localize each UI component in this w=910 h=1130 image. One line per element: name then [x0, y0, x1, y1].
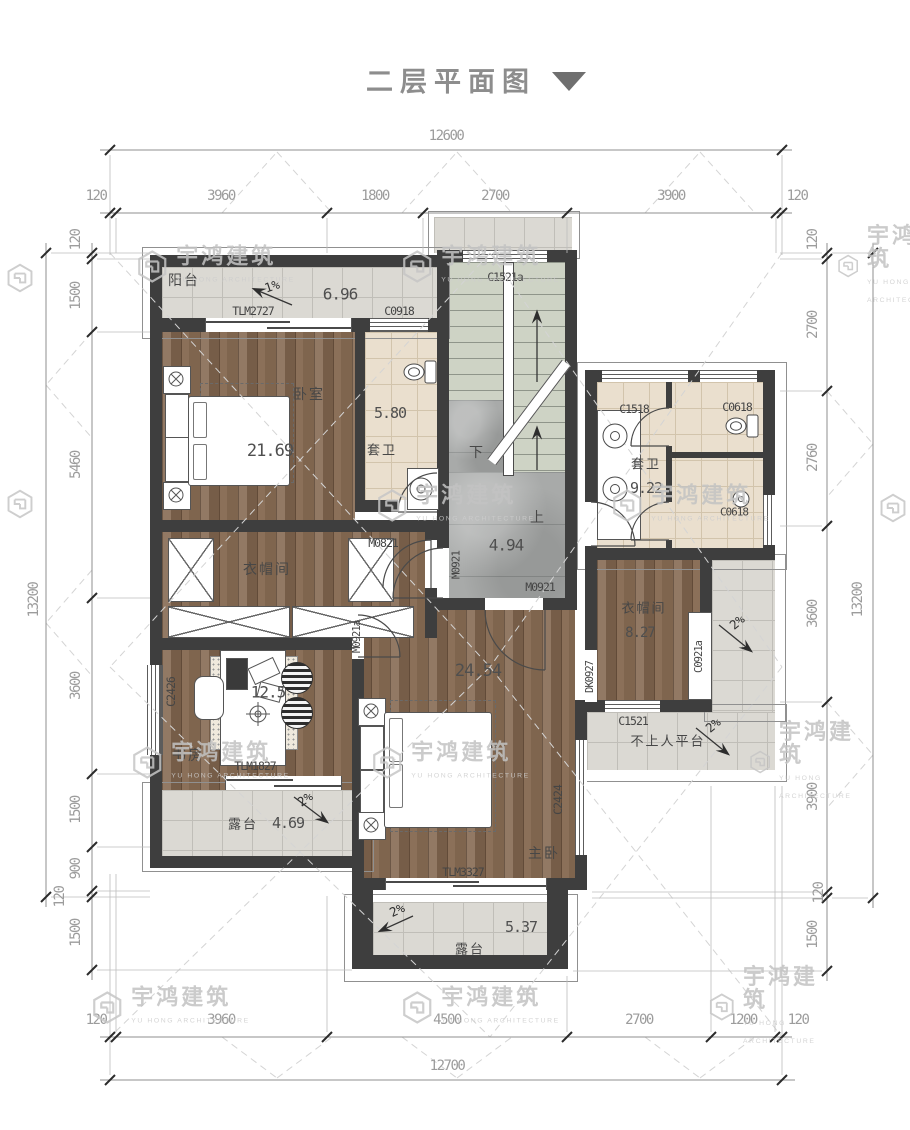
stall-divider — [666, 382, 672, 408]
stall-divider — [672, 452, 763, 458]
dim-right-2: 2760 — [805, 444, 821, 472]
watermark-logo-partial — [878, 493, 908, 523]
dim-top-5: 120 — [787, 188, 808, 204]
dim-bottom-2: 4500 — [433, 1012, 461, 1028]
area-balcony: 6.96 — [323, 285, 358, 304]
area-terrace-bottom: 5.37 — [505, 918, 537, 936]
wall-segment — [585, 548, 775, 560]
ensuite-vanity — [407, 468, 439, 510]
opening-label-dk0927: DK0927 — [584, 661, 596, 693]
nightstand — [358, 812, 386, 840]
door-opening-m0921-west — [437, 548, 449, 598]
monitor-icon — [226, 658, 248, 690]
wall-segment — [565, 250, 577, 610]
dim-right-1: 2700 — [805, 311, 821, 339]
bedside-drawer — [360, 726, 384, 770]
window-label-c2426: C2426 — [164, 677, 178, 707]
dim-bottom-4: 1200 — [729, 1012, 757, 1028]
door-label-m0921-south: M0921 — [525, 580, 555, 594]
window-label-c2424: C2424 — [551, 785, 565, 815]
dim-top-total: 12600 — [429, 128, 464, 144]
dim-bottom-total: 12700 — [430, 1058, 465, 1074]
wall-segment — [355, 332, 365, 512]
bedside-drawer — [165, 437, 189, 482]
dim-bottom-1: 3960 — [207, 1012, 235, 1028]
dim-right-6: 1500 — [805, 921, 821, 949]
dim-top-1: 3960 — [207, 188, 235, 204]
window-c0618-top — [700, 370, 757, 382]
dim-right-5: 120 — [811, 883, 827, 904]
desk-chair — [194, 676, 224, 720]
dim-top-3: 2700 — [481, 188, 509, 204]
window-c1521a — [463, 250, 547, 262]
window-label-c1518: C1518 — [619, 402, 649, 416]
dim-left-total: 13200 — [26, 583, 42, 618]
watermark: 宇鸿建筑YU HONG ARCHITECTURE — [708, 966, 843, 1048]
window-c2424 — [575, 740, 587, 855]
window-label-c0618-top: C0618 — [722, 400, 752, 414]
room-label-ensuite: 套卫 — [367, 440, 397, 459]
floor-plan-sheet: 二层平面图 — [0, 0, 910, 1130]
wardrobe-cabinet — [168, 606, 290, 638]
dim-left-2: 5460 — [68, 451, 84, 479]
room-label-study: 书房 — [172, 745, 204, 765]
page-title: 二层平面图 — [366, 60, 586, 99]
dim-left-1: 1500 — [68, 282, 84, 310]
room-label-terrace-left: 露台 — [228, 814, 258, 833]
dim-right-0: 120 — [805, 230, 821, 251]
dim-bottom-5: 120 — [788, 1012, 809, 1028]
window-c1518 — [602, 370, 688, 382]
window-label-c0918: C0918 — [384, 304, 414, 318]
dim-top-4: 3900 — [657, 188, 685, 204]
area-closet-right: 8.27 — [625, 625, 655, 641]
dim-left-3: 3600 — [68, 672, 84, 700]
dim-right-3: 3600 — [805, 600, 821, 628]
wardrobe-cabinet — [168, 538, 214, 602]
dim-bottom-3: 2700 — [625, 1012, 653, 1028]
pillow — [389, 764, 403, 808]
sliding-door-tlm3327 — [385, 878, 547, 890]
striped-stool — [281, 697, 313, 729]
door-opening-bath — [585, 502, 597, 546]
bath-vanity — [597, 410, 641, 540]
wall-segment — [150, 755, 162, 868]
window-label-c0618-bottom: C0618 — [720, 506, 748, 519]
window-label-c0921a: C0921a — [693, 641, 705, 673]
area-bath: 9.22 — [630, 479, 662, 497]
room-label-bedroom: 卧室 — [293, 384, 325, 404]
room-label-bath: 套卫 — [631, 454, 661, 473]
dim-bottom-0: 120 — [86, 1012, 107, 1028]
sliding-door-tlm2727 — [205, 318, 352, 332]
dim-top-0: 120 — [86, 188, 107, 204]
door-label-tlm2727: TLM2727 — [232, 304, 273, 318]
door-opening-m0821 — [425, 540, 437, 588]
room-label-balcony: 阳台 — [168, 270, 200, 290]
page-title-text: 二层平面图 — [366, 60, 536, 99]
area-ensuite: 5.80 — [374, 404, 406, 422]
nightstand — [163, 366, 191, 394]
wall-segment — [547, 890, 568, 960]
wall-segment — [575, 700, 585, 712]
room-label-closet-right: 衣帽间 — [621, 598, 666, 617]
pillow — [193, 444, 207, 480]
wall-segment — [150, 520, 449, 532]
window-c2426 — [147, 665, 163, 755]
dim-left-6: 120 — [52, 887, 68, 908]
area-bedroom: 21.69 — [247, 441, 293, 461]
bedside-drawer — [165, 394, 189, 439]
wall-segment — [150, 856, 364, 868]
dim-right-total: 13200 — [850, 583, 866, 618]
wall-segment — [700, 560, 712, 612]
wall-segment — [150, 332, 162, 665]
pillow — [193, 402, 207, 438]
window-c1521 — [605, 700, 660, 712]
room-label-master: 主卧 — [528, 843, 560, 863]
dim-top-2: 1800 — [361, 188, 389, 204]
stair-label-up: 上 — [530, 507, 546, 527]
wall-segment — [150, 638, 362, 650]
room-label-closet-left: 衣帽间 — [243, 559, 291, 579]
outline-platform-vertical — [704, 554, 786, 722]
watermark-logo-partial — [5, 489, 35, 519]
door-label-m0821: M0821 — [368, 536, 398, 550]
dim-left-5: 900 — [68, 859, 84, 880]
area-master: 24.54 — [455, 661, 501, 681]
dim-left-0: 120 — [68, 230, 84, 251]
wall-segment — [150, 255, 440, 267]
dim-left-7: 1500 — [68, 919, 84, 947]
window-label-c1521a: C1521a — [487, 270, 523, 284]
stair-label-down: 下 — [469, 442, 485, 462]
watermark-logo-partial — [5, 263, 35, 293]
pillow — [389, 718, 403, 762]
door-label-m0921-west: M0921 — [450, 551, 463, 579]
dim-right-4: 3900 — [805, 783, 821, 811]
nightstand — [358, 698, 386, 726]
area-study: 12.5 — [251, 683, 286, 702]
area-stair: 4.94 — [489, 536, 524, 555]
area-terrace-left: 4.69 — [272, 814, 304, 832]
window-c0918 — [370, 318, 428, 332]
wall-segment — [150, 267, 162, 318]
bedside-drawer — [360, 770, 384, 814]
door-opening-m0921-south — [485, 598, 543, 610]
striped-stool — [281, 662, 313, 694]
wall-segment — [352, 890, 373, 960]
nightstand — [163, 482, 191, 510]
door-label-m0921a: M0921a — [351, 621, 363, 653]
window-label-c1521: C1521 — [618, 714, 648, 728]
door-label-tlm1827: TLM1827 — [234, 759, 275, 773]
title-triangle-icon — [552, 72, 586, 91]
room-label-terrace-bottom: 露台 — [455, 939, 485, 958]
window-c0618-bottom — [763, 495, 775, 545]
dim-left-4: 1500 — [68, 796, 84, 824]
watermark: 宇鸿建筑YU HONG ARCHITECTURE — [836, 225, 910, 307]
watermark: 宇鸿建筑YU HONG ARCHITECTURE — [400, 987, 559, 1028]
door-label-tlm3327: TLM3327 — [442, 865, 483, 879]
room-label-platform: 不上人平台 — [630, 731, 705, 750]
sliding-door-tlm1827 — [225, 776, 342, 790]
stall-divider — [666, 540, 672, 548]
